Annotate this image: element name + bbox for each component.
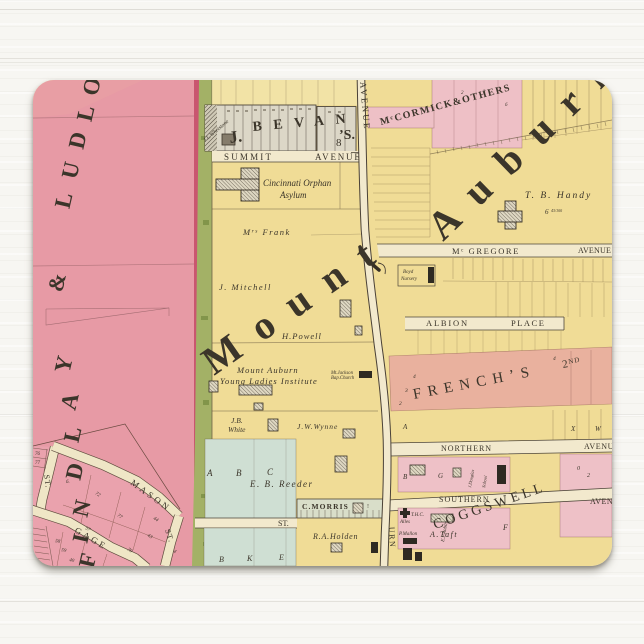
svg-text:ST.: ST. [278, 519, 289, 528]
svg-text:R.A.Holden: R.A.Holden [312, 532, 358, 541]
svg-text:AVENU: AVENU [584, 442, 612, 451]
svg-text:Young Ladies Institute: Young Ladies Institute [220, 376, 318, 386]
svg-text:6.: 6. [66, 480, 70, 485]
svg-text:8: 8 [336, 137, 342, 149]
svg-text:0: 0 [577, 466, 580, 472]
svg-text:T.H.C.: T.H.C. [411, 513, 424, 518]
svg-text:Mrs Frank: Mrs Frank [242, 227, 291, 237]
svg-text:Nursery: Nursery [400, 277, 418, 282]
svg-text:J.: J. [228, 126, 243, 147]
svg-text:Asylum: Asylum [279, 190, 307, 200]
svg-text:Cincinnati Orphan: Cincinnati Orphan [263, 178, 332, 188]
svg-text:AVENUE: AVENUE [578, 246, 611, 255]
svg-text:3: 3 [404, 388, 408, 394]
svg-text:B: B [403, 473, 408, 481]
svg-text:!: ! [367, 504, 369, 510]
svg-text:2: 2 [587, 473, 590, 479]
svg-text:AVEN: AVEN [590, 497, 612, 506]
svg-text:P.Mallon: P.Mallon [398, 532, 418, 537]
svg-text:Alles: Alles [399, 520, 410, 525]
svg-text:Bap.Church: Bap.Church [331, 376, 355, 381]
svg-text:E. B. Reeder: E. B. Reeder [249, 479, 313, 489]
svg-text:J.B.: J.B. [231, 416, 243, 425]
svg-text:ALBION: ALBION [426, 318, 469, 328]
svg-text:A.Taft: A.Taft [429, 530, 458, 539]
svg-text:6: 6 [545, 208, 549, 216]
svg-text:NORTHERN: NORTHERN [441, 444, 492, 453]
svg-text:A: A [402, 423, 408, 431]
svg-text:76: 76 [35, 452, 41, 457]
svg-text:Mount Auburn: Mount Auburn [236, 365, 299, 375]
svg-text:B: B [219, 555, 224, 564]
svg-text:77: 77 [35, 461, 41, 466]
svg-text:J.W.Wynne: J.W.Wynne [297, 422, 338, 431]
svg-text:G: G [438, 472, 443, 480]
svg-text:F: F [502, 523, 508, 532]
svg-text:A: A [206, 468, 213, 478]
svg-text:SUMMIT: SUMMIT [224, 152, 273, 162]
svg-text:4: 4 [553, 355, 556, 362]
svg-text:URN: URN [387, 527, 397, 549]
svg-text:ST.: ST. [42, 474, 53, 489]
svg-text:White: White [228, 425, 246, 434]
svg-text:K: K [246, 554, 253, 563]
svg-text:43/100: 43/100 [551, 208, 562, 213]
svg-text:AVENUE: AVENUE [315, 152, 362, 162]
svg-text:B: B [236, 468, 242, 478]
svg-text:Boyd: Boyd [403, 270, 414, 275]
svg-text:4: 4 [413, 373, 416, 380]
svg-text:2: 2 [399, 401, 402, 407]
svg-text:J. Mitchell: J. Mitchell [219, 282, 272, 292]
svg-text:E: E [278, 553, 284, 562]
svg-text:Mᶜ GREGORE: Mᶜ GREGORE [452, 246, 520, 256]
svg-text:C.MORRIS: C.MORRIS [302, 502, 349, 511]
svg-text:PLACE: PLACE [511, 318, 545, 328]
svg-text:T. B. Handy: T. B. Handy [525, 191, 592, 201]
svg-text:C: C [267, 467, 274, 477]
svg-text:X: X [570, 425, 576, 433]
